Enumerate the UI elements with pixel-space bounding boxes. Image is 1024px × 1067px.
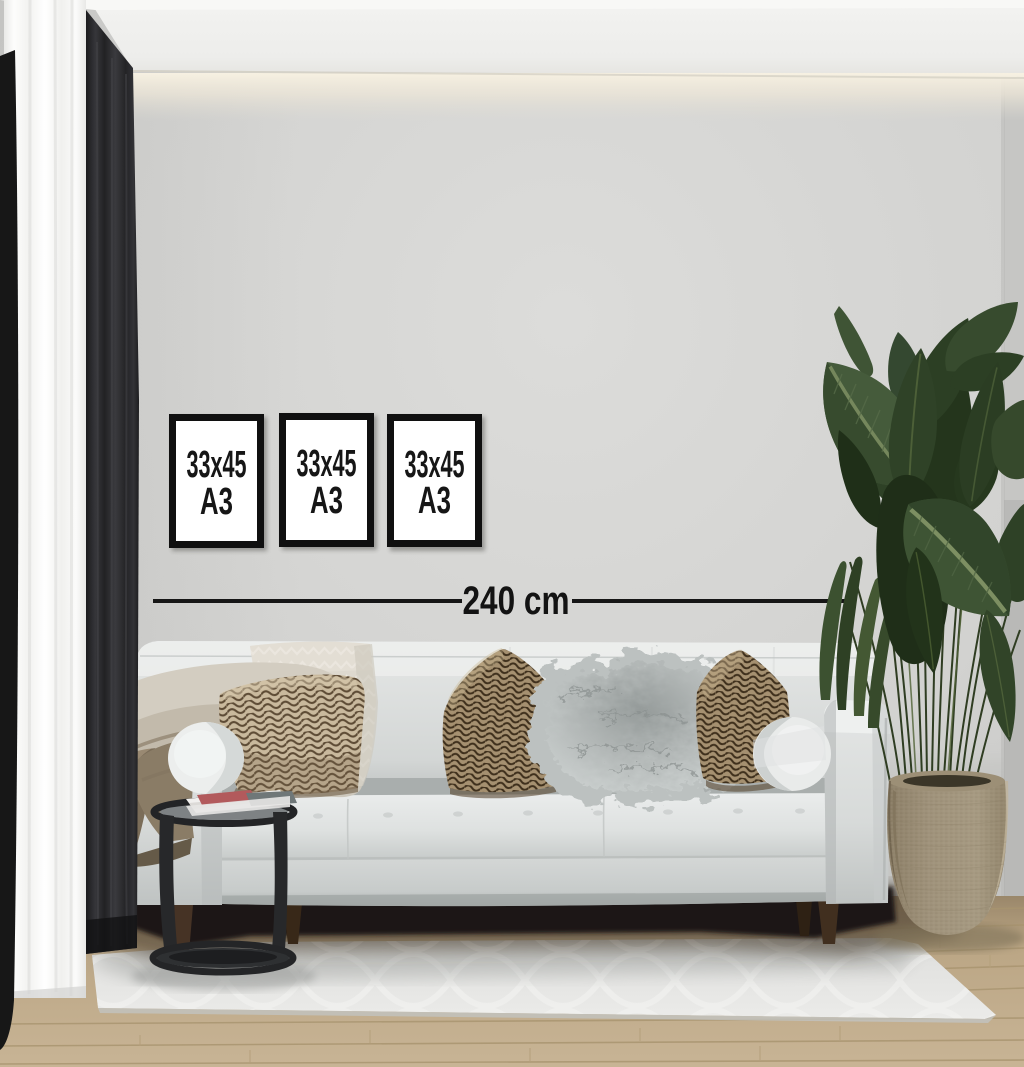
svg-text:A3: A3 [200,481,233,523]
svg-text:33x45: 33x45 [187,444,247,486]
svg-text:33x45: 33x45 [297,443,357,485]
svg-text:240 cm: 240 cm [463,579,570,623]
svg-text:A3: A3 [310,480,343,522]
svg-text:A3: A3 [418,480,451,522]
